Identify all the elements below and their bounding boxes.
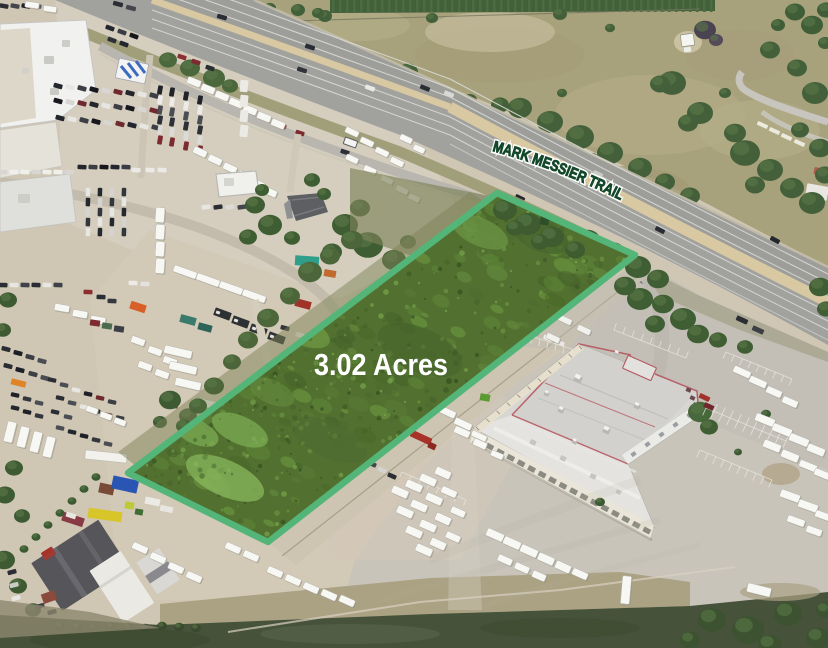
svg-text:3.02 Acres: 3.02 Acres — [314, 347, 448, 382]
